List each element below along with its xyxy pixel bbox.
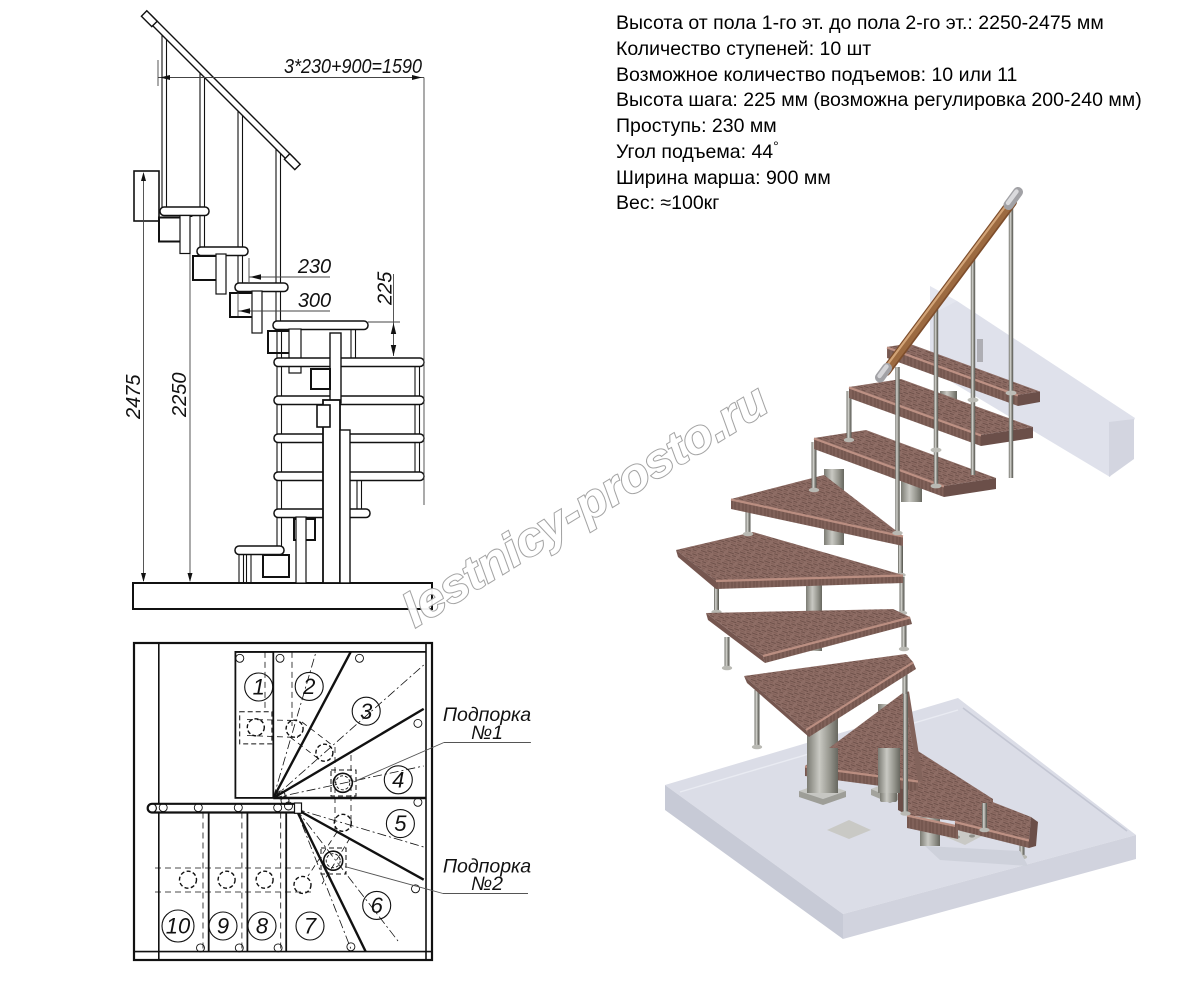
svg-text:3*230+900=1590: 3*230+900=1590: [284, 55, 423, 78]
svg-text:6: 6: [371, 893, 384, 918]
svg-text:7: 7: [304, 914, 317, 939]
svg-text:Ширина марша: 900 мм: Ширина марша: 900 мм: [616, 167, 831, 189]
svg-text:№2: №2: [471, 873, 503, 895]
svg-text:2: 2: [302, 674, 315, 699]
svg-text:8: 8: [256, 914, 269, 939]
svg-text:225: 225: [375, 271, 397, 306]
svg-text:Высота шага: 225 мм (возможна: Высота шага: 225 мм (возможна регулировк…: [616, 89, 1142, 111]
svg-text:9: 9: [217, 914, 229, 939]
svg-text:Угол подъема: 44°: Угол подъема: 44°: [616, 138, 779, 163]
svg-text:Количество ступеней: 10 шт: Количество ступеней: 10 шт: [616, 38, 871, 60]
svg-text:2475: 2475: [123, 374, 145, 420]
svg-text:230: 230: [297, 256, 331, 278]
svg-text:4: 4: [392, 768, 404, 793]
svg-text:5: 5: [394, 811, 407, 836]
svg-text:Вес: ≈100кг: Вес: ≈100кг: [616, 192, 719, 214]
svg-text:300: 300: [298, 290, 331, 312]
svg-text:№1: №1: [471, 722, 503, 744]
svg-text:10: 10: [166, 914, 191, 939]
svg-text:2250: 2250: [169, 373, 191, 419]
svg-text:1: 1: [253, 675, 265, 700]
svg-text:Высота от пола 1-го эт. до пол: Высота от пола 1-го эт. до пола 2-го эт.…: [616, 12, 1104, 34]
svg-text:Возможное количество подъемов:: Возможное количество подъемов: 10 или 11: [616, 64, 1017, 86]
svg-text:Проступь: 230 мм: Проступь: 230 мм: [616, 115, 777, 137]
svg-text:3: 3: [360, 699, 373, 724]
